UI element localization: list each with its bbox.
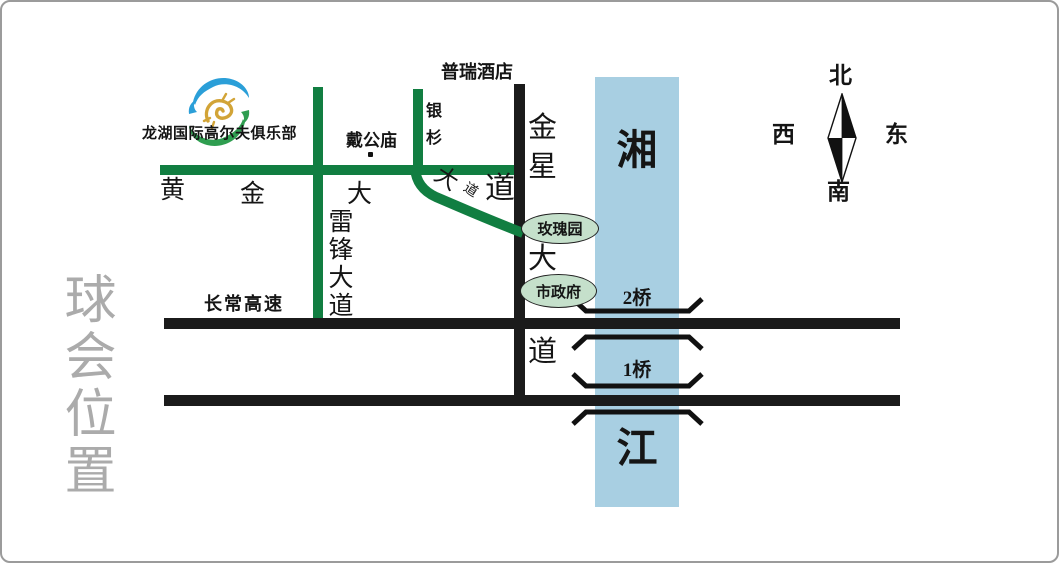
river-name-char-bottom: 江 — [606, 428, 668, 469]
daigong-temple-label: 戴公庙 — [346, 132, 397, 149]
river-name-char-top: 湘 — [606, 130, 668, 171]
city-hall-label: 市政府 — [536, 281, 581, 302]
leifeng-avenue-label: 雷锋大道 — [326, 208, 351, 320]
bridge-1-label: 1桥 — [595, 361, 679, 380]
jinxing-char-2: 星 — [528, 153, 557, 182]
bend-road-char-2: 道 — [460, 181, 479, 200]
compass-east-label: 东 — [885, 123, 908, 146]
club-name-label: 龙湖国际高尔夫俱乐部 — [142, 127, 297, 142]
huangjin-char-3: 大 — [347, 182, 372, 207]
jinxing-avenue-road — [514, 84, 525, 406]
rose-garden-landmark: 玫瑰园 — [521, 213, 599, 244]
yinshan-label: 银杉 — [423, 102, 439, 156]
changchang-expressway-road — [164, 318, 900, 329]
compass-north-label: 北 — [829, 64, 852, 87]
leifeng-avenue-road — [313, 87, 323, 318]
jinxing-char-1: 金 — [528, 114, 557, 143]
jinxing-char-4: 道 — [528, 338, 557, 367]
changchang-expressway-label: 长常高速 — [204, 295, 284, 313]
compass-south-label: 南 — [827, 180, 850, 203]
huangjin-char-2: 金 — [240, 182, 265, 207]
yinshan-road — [413, 89, 423, 175]
south-highway-road — [164, 395, 900, 406]
huangjin-char-1: 黄 — [160, 178, 185, 203]
huangjin-char-4: 道 — [485, 174, 515, 204]
golf-club-location-map: 球会位置 龙湖国际高尔夫俱乐部 湘 江 黄 金 大 道 大 道 雷锋大道 银杉 … — [0, 0, 1059, 563]
page-title-vertical: 球会位置 — [58, 272, 110, 522]
city-hall-landmark: 市政府 — [520, 274, 597, 308]
daigong-temple-dot-icon — [368, 152, 373, 157]
purui-hotel-label: 普瑞酒店 — [441, 63, 513, 81]
compass-needle-icon — [825, 93, 859, 183]
bridge-2-label: 2桥 — [595, 289, 679, 308]
jinxing-char-3: 大 — [528, 245, 557, 274]
compass-west-label: 西 — [772, 123, 795, 146]
rose-garden-label: 玫瑰园 — [537, 218, 582, 239]
